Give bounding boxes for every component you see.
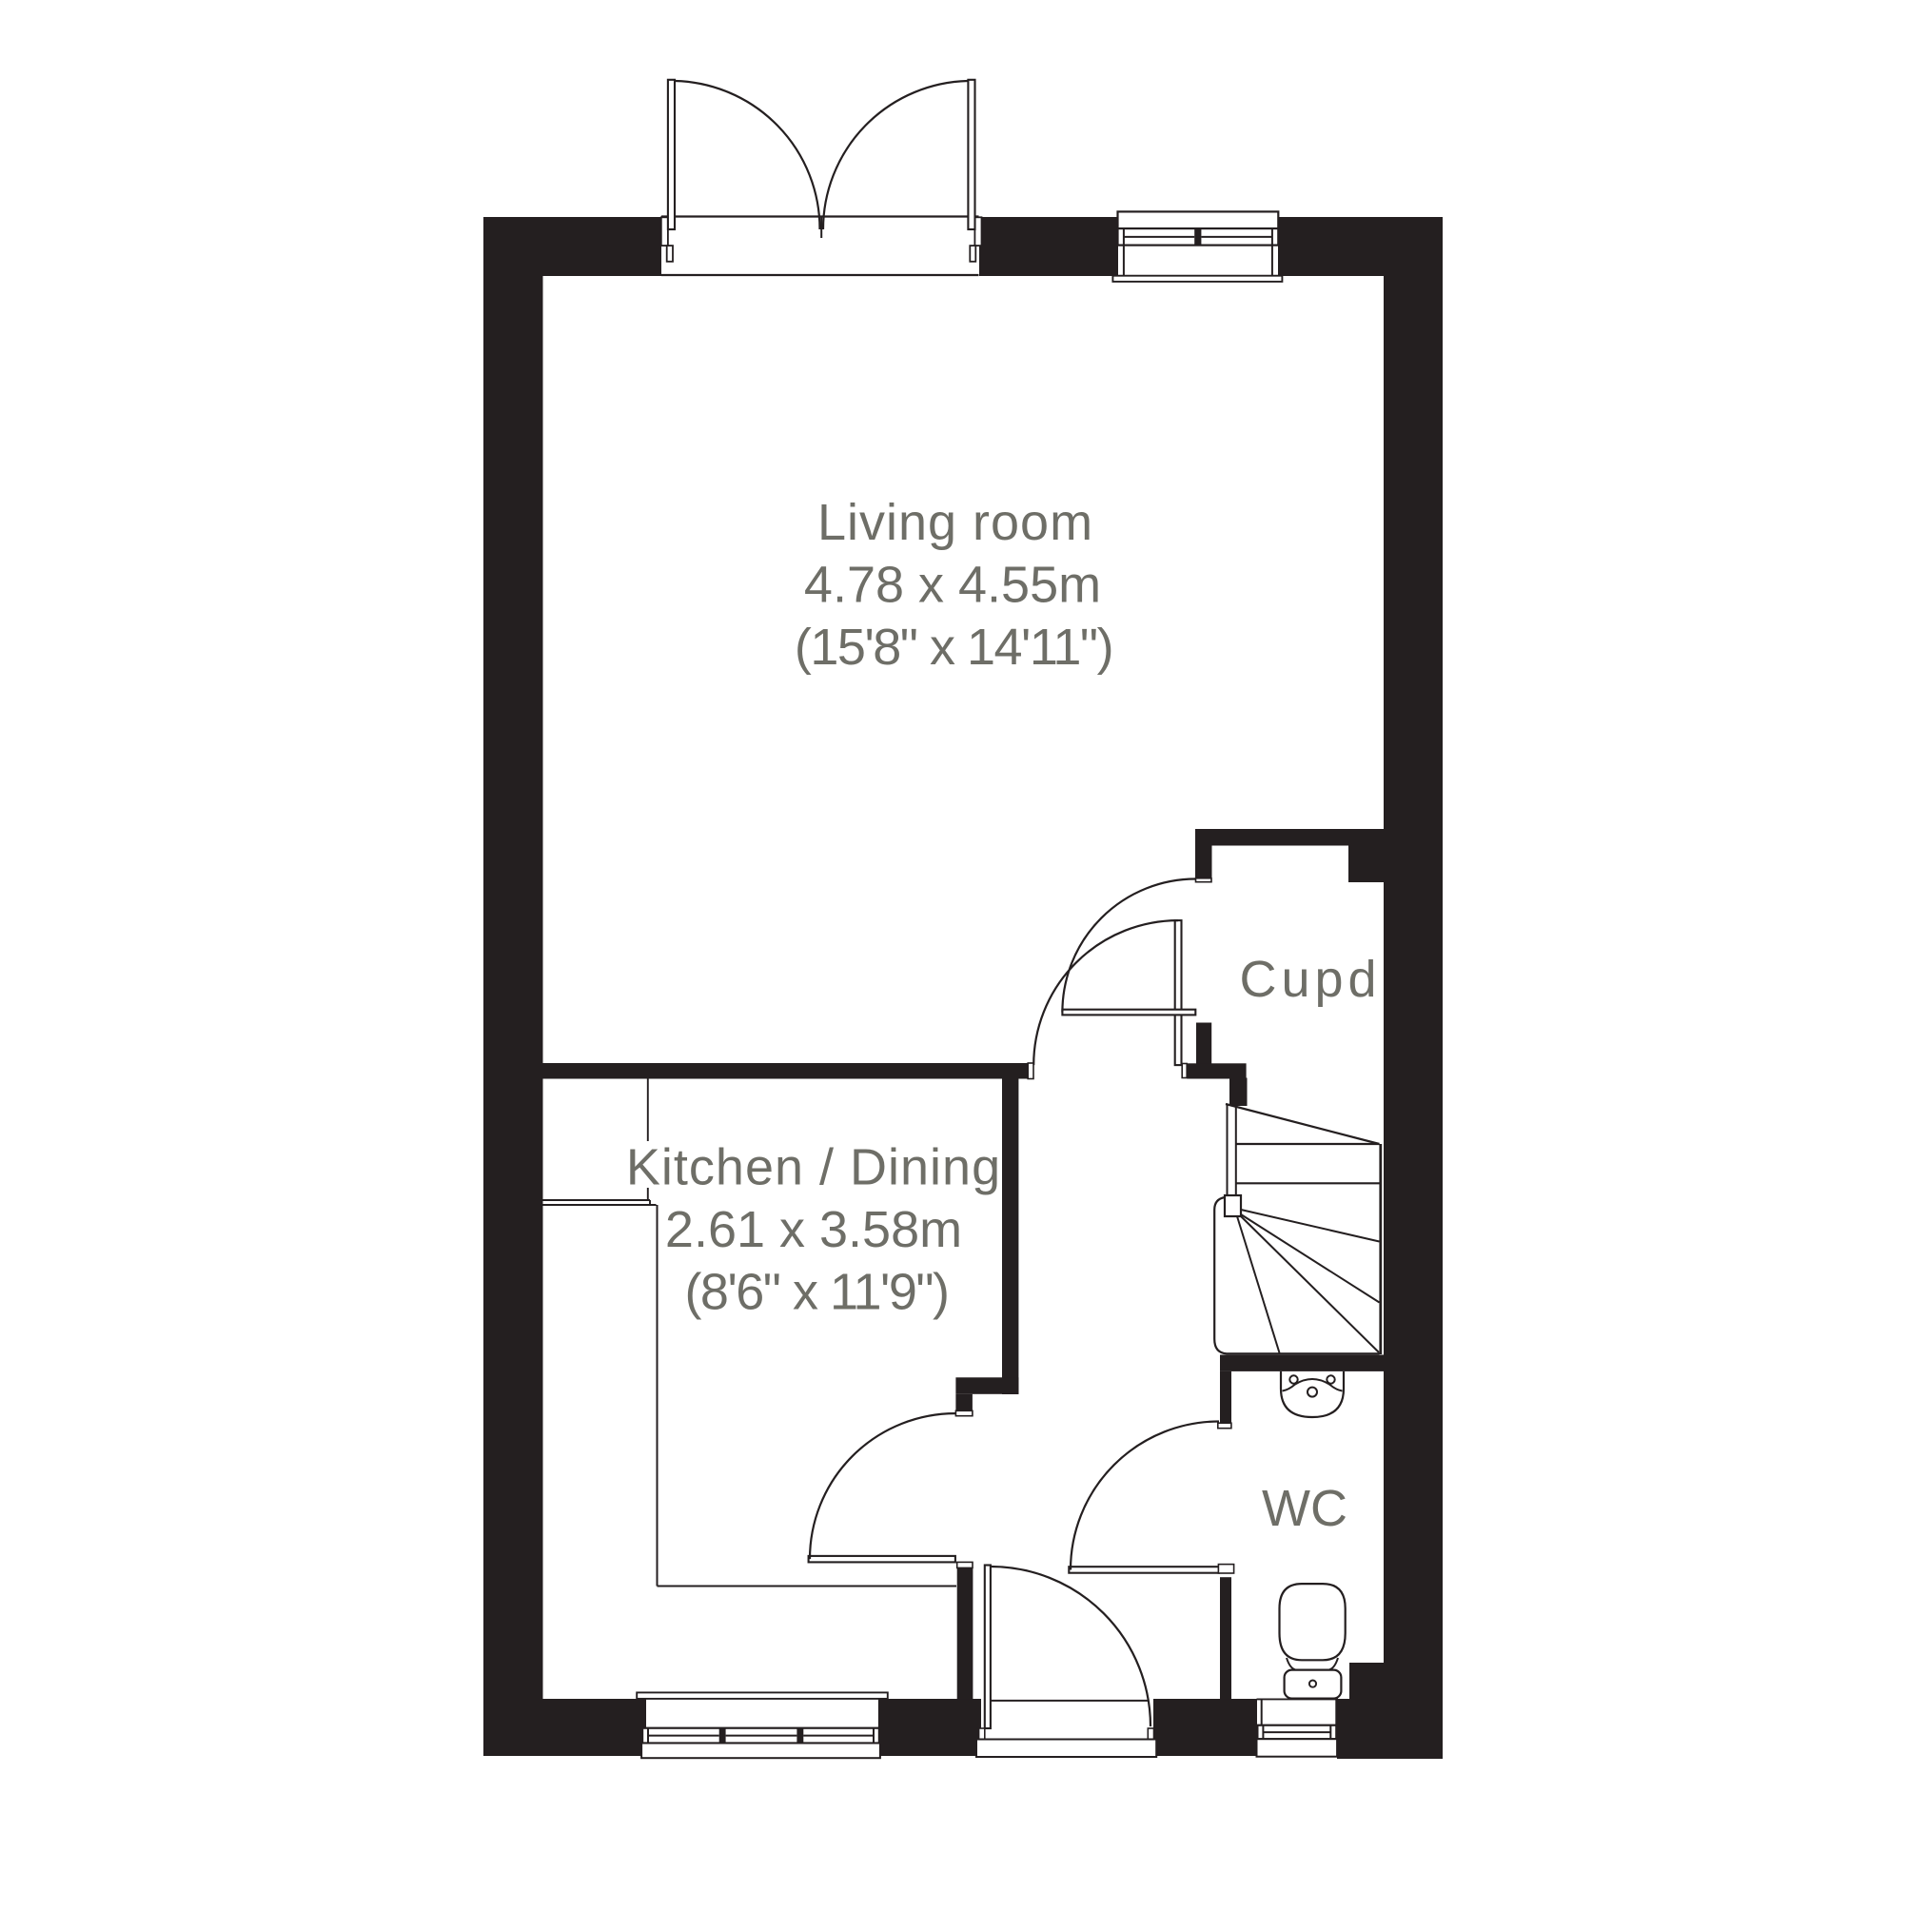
svg-text:(8'6" x 11'9"): (8'6" x 11'9") [684,1264,948,1321]
svg-text:Kitchen / Dining: Kitchen / Dining [626,1139,1001,1196]
svg-text:Cupd: Cupd [1239,951,1381,1008]
svg-text:2.61 x 3.58m: 2.61 x 3.58m [665,1201,962,1258]
svg-text:4.78 x 4.55m: 4.78 x 4.55m [804,557,1101,614]
svg-text:WC: WC [1262,1480,1347,1537]
svg-text:Living room: Living room [817,494,1093,551]
svg-text:(15'8" x 14'11"): (15'8" x 14'11") [795,619,1112,676]
